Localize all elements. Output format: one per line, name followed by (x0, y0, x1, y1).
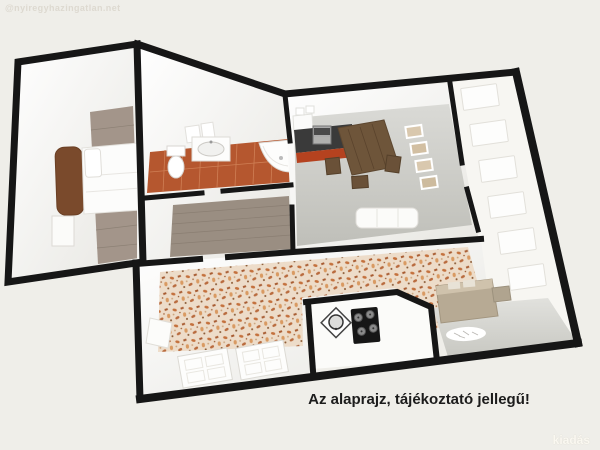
sink-vanity-icon (192, 137, 230, 161)
nightstand-icon (52, 216, 74, 246)
kitchenette-alcove (309, 293, 435, 369)
lower-left-wall (136, 263, 140, 399)
bedroom (8, 44, 143, 282)
watermark-top-left: @nyiregyhazingatlan.net (5, 3, 121, 13)
floorplan-page: @nyiregyhazingatlan.net Az alaprajz, táj… (0, 0, 600, 450)
floorplan-image (0, 0, 600, 450)
sofa-icon (356, 208, 418, 228)
gas-hob-icon (351, 307, 381, 344)
toilet-icon (167, 146, 185, 178)
stove-icon (313, 126, 331, 144)
floorplan-disclaimer-caption: Az alaprajz, tájékoztató jellegű! (288, 391, 550, 408)
bed-icon (55, 143, 141, 215)
hallway (170, 196, 291, 257)
window-icon (146, 318, 172, 348)
bathroom-hallway-block (137, 44, 293, 264)
watermark-bottom-right: kiadás (553, 433, 590, 447)
